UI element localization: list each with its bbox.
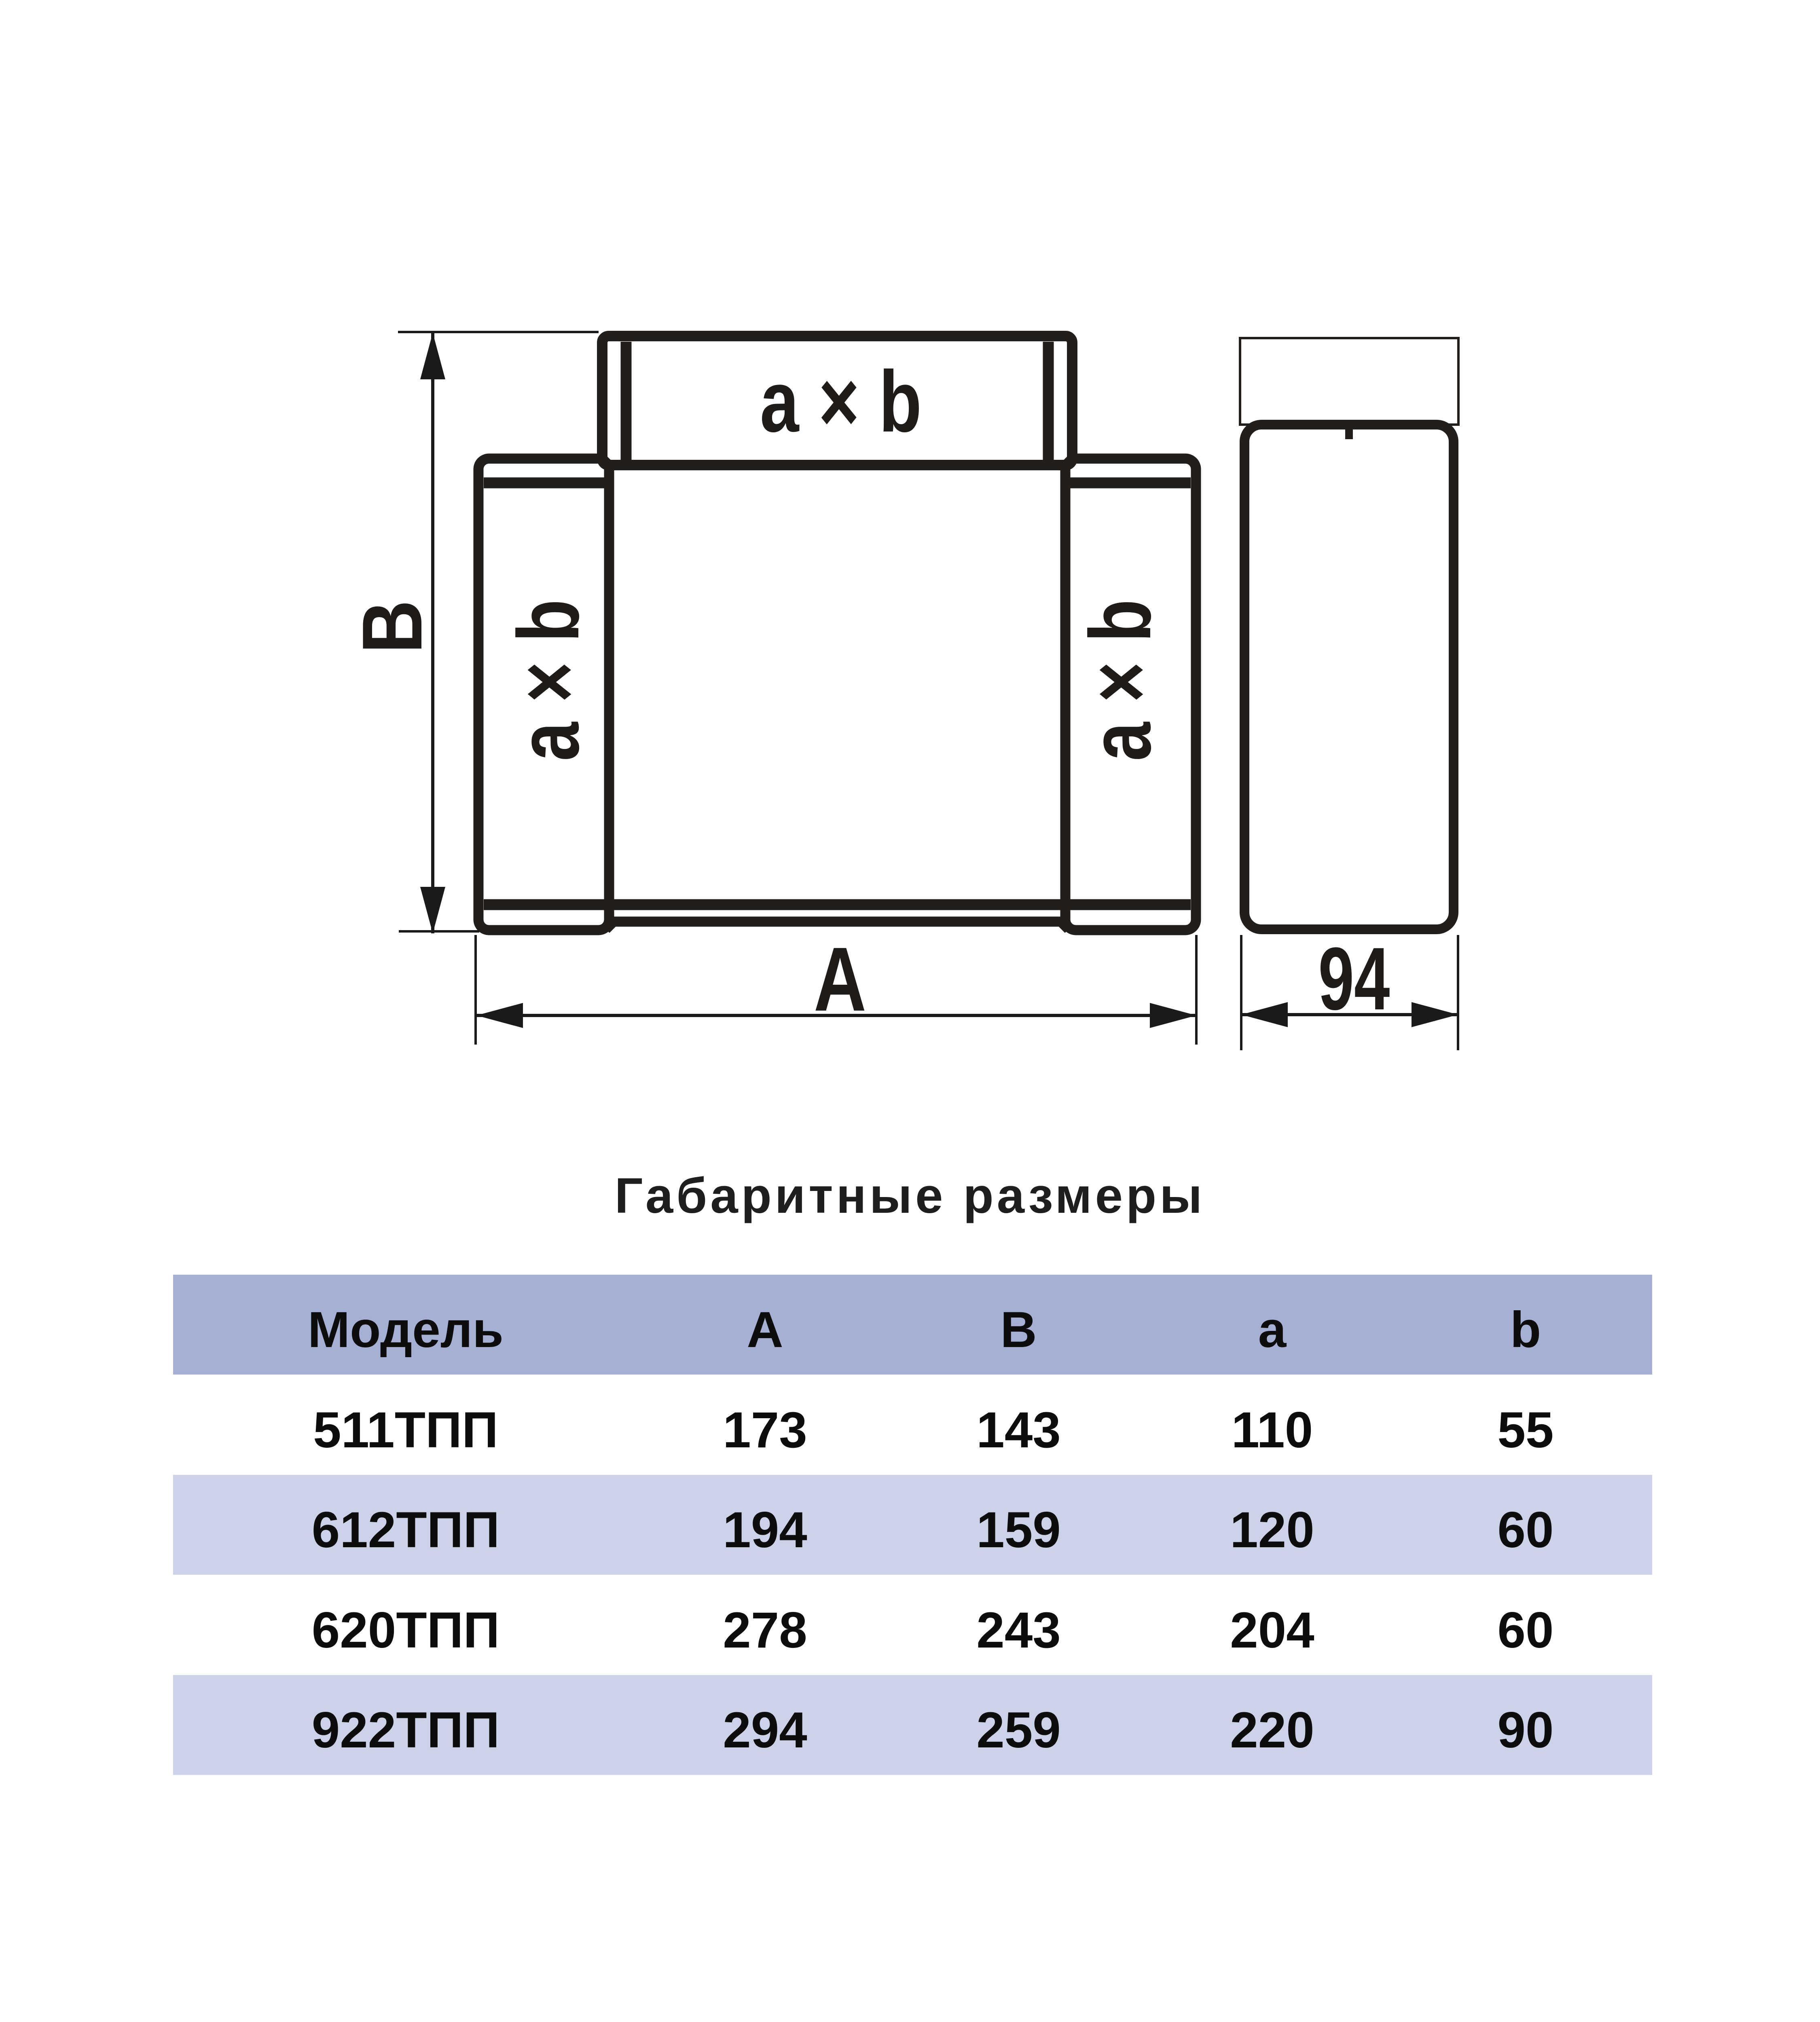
svg-text:94: 94: [1318, 929, 1390, 1028]
svg-text:A: A: [814, 928, 866, 1030]
svg-text:B: B: [345, 600, 440, 654]
svg-text:a × b: a × b: [499, 599, 597, 761]
svg-text:a × b: a × b: [760, 353, 922, 450]
svg-text:a × b: a × b: [1071, 599, 1169, 761]
